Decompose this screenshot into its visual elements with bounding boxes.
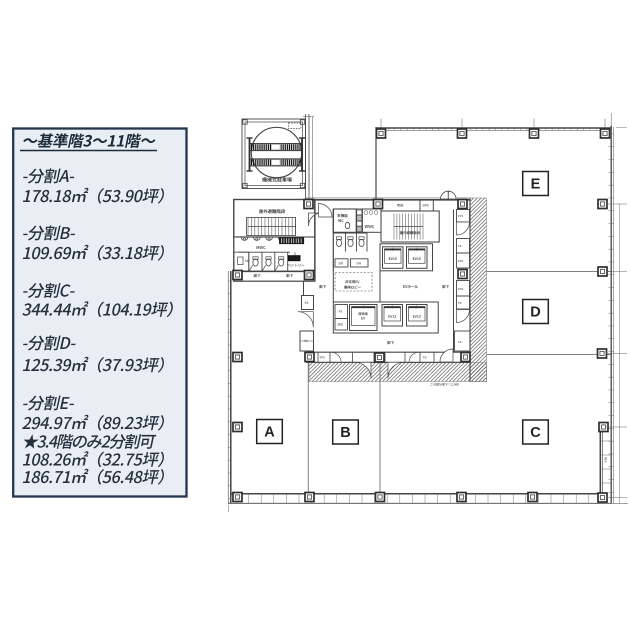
- svg-text:A: A: [264, 425, 275, 441]
- svg-text:D: D: [530, 305, 540, 321]
- svg-text:B: B: [340, 425, 350, 441]
- svg-text:E: E: [531, 177, 541, 193]
- svg-text:C: C: [530, 425, 541, 441]
